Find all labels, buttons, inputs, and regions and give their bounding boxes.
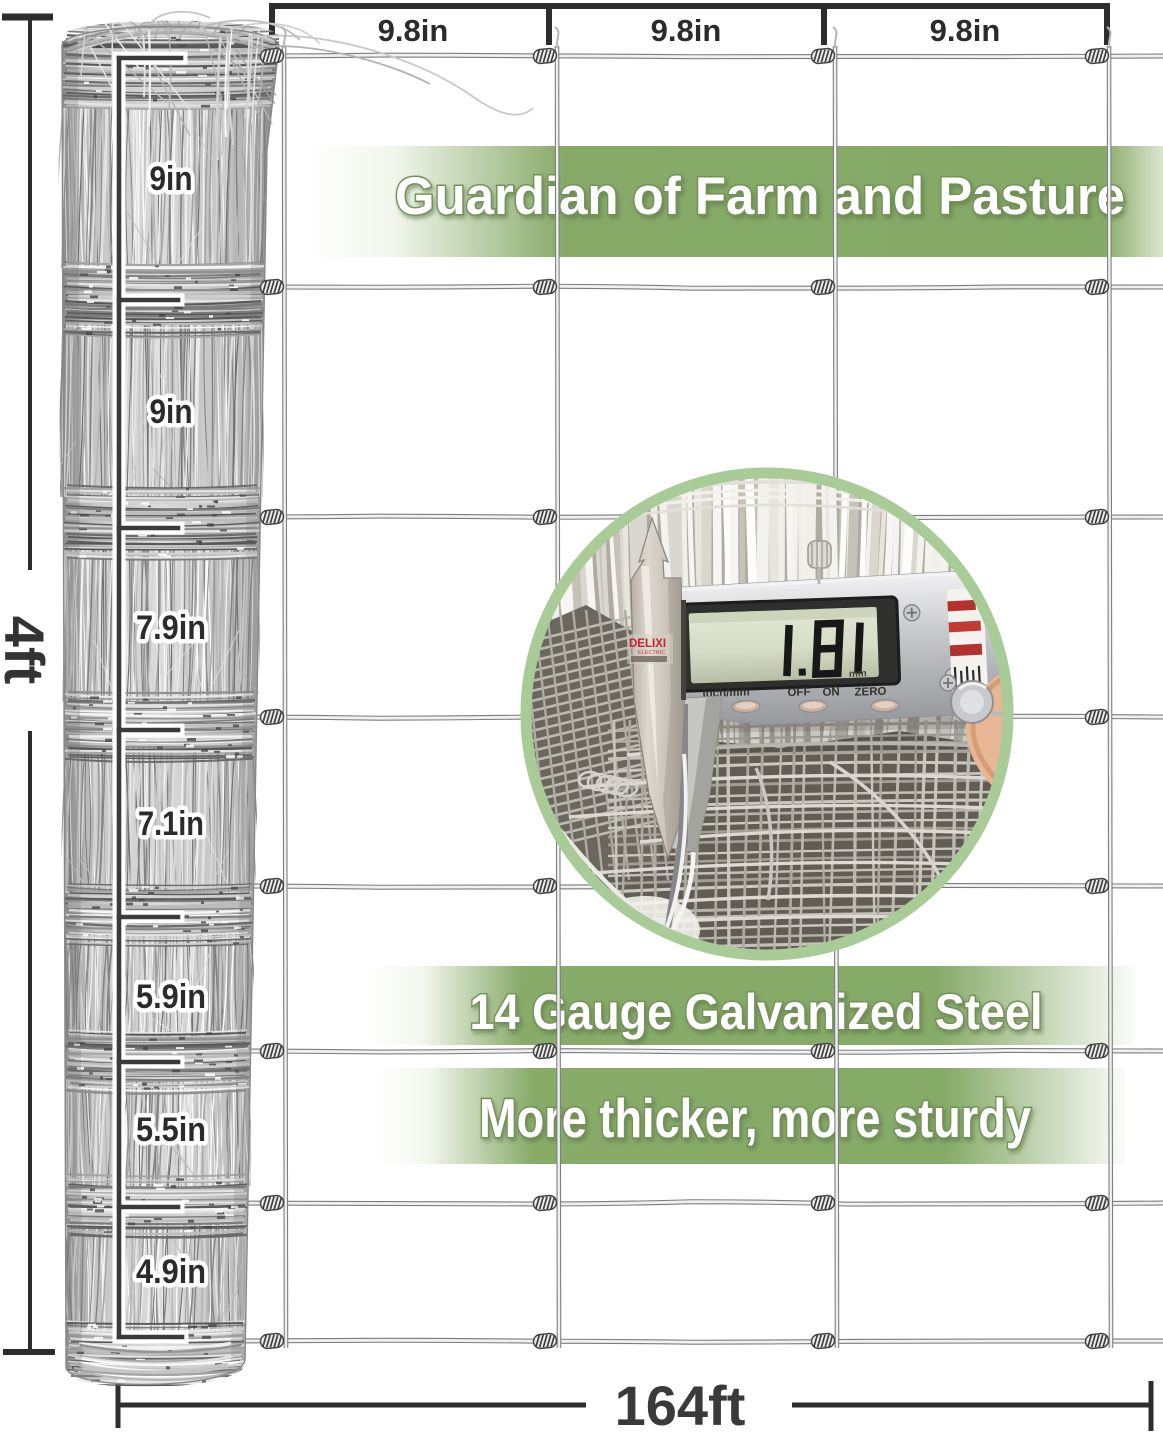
svg-text:164ft: 164ft	[615, 1374, 746, 1434]
svg-text:5.9in: 5.9in	[136, 978, 206, 1016]
svg-text:7.1in: 7.1in	[138, 805, 204, 843]
svg-text:5.5in: 5.5in	[136, 1111, 206, 1149]
svg-text:4.9in: 4.9in	[136, 1253, 206, 1291]
svg-text:ELECTRIC: ELECTRIC	[638, 650, 665, 656]
svg-text:9in: 9in	[150, 393, 193, 431]
svg-text:9in: 9in	[150, 160, 193, 198]
svg-text:9.8in: 9.8in	[651, 13, 722, 48]
svg-text:4ft: 4ft	[0, 616, 56, 684]
svg-text:mm: mm	[849, 668, 867, 680]
svg-text:9.8in: 9.8in	[930, 13, 1001, 48]
svg-text:14 Gauge Galvanized Steel: 14 Gauge Galvanized Steel	[470, 984, 1043, 1040]
svg-text:ON: ON	[822, 686, 840, 699]
svg-text:ZERO: ZERO	[854, 686, 886, 699]
svg-text:OFF: OFF	[787, 686, 810, 699]
svg-text:DELIXI: DELIXI	[629, 638, 666, 650]
svg-text:More thicker, more sturdy: More thicker, more sturdy	[479, 1087, 1031, 1149]
svg-text:7.9in: 7.9in	[136, 609, 206, 647]
svg-text:Guardian of Farm and Pasture: Guardian of Farm and Pasture	[395, 167, 1125, 226]
svg-text:9.8in: 9.8in	[378, 13, 449, 48]
